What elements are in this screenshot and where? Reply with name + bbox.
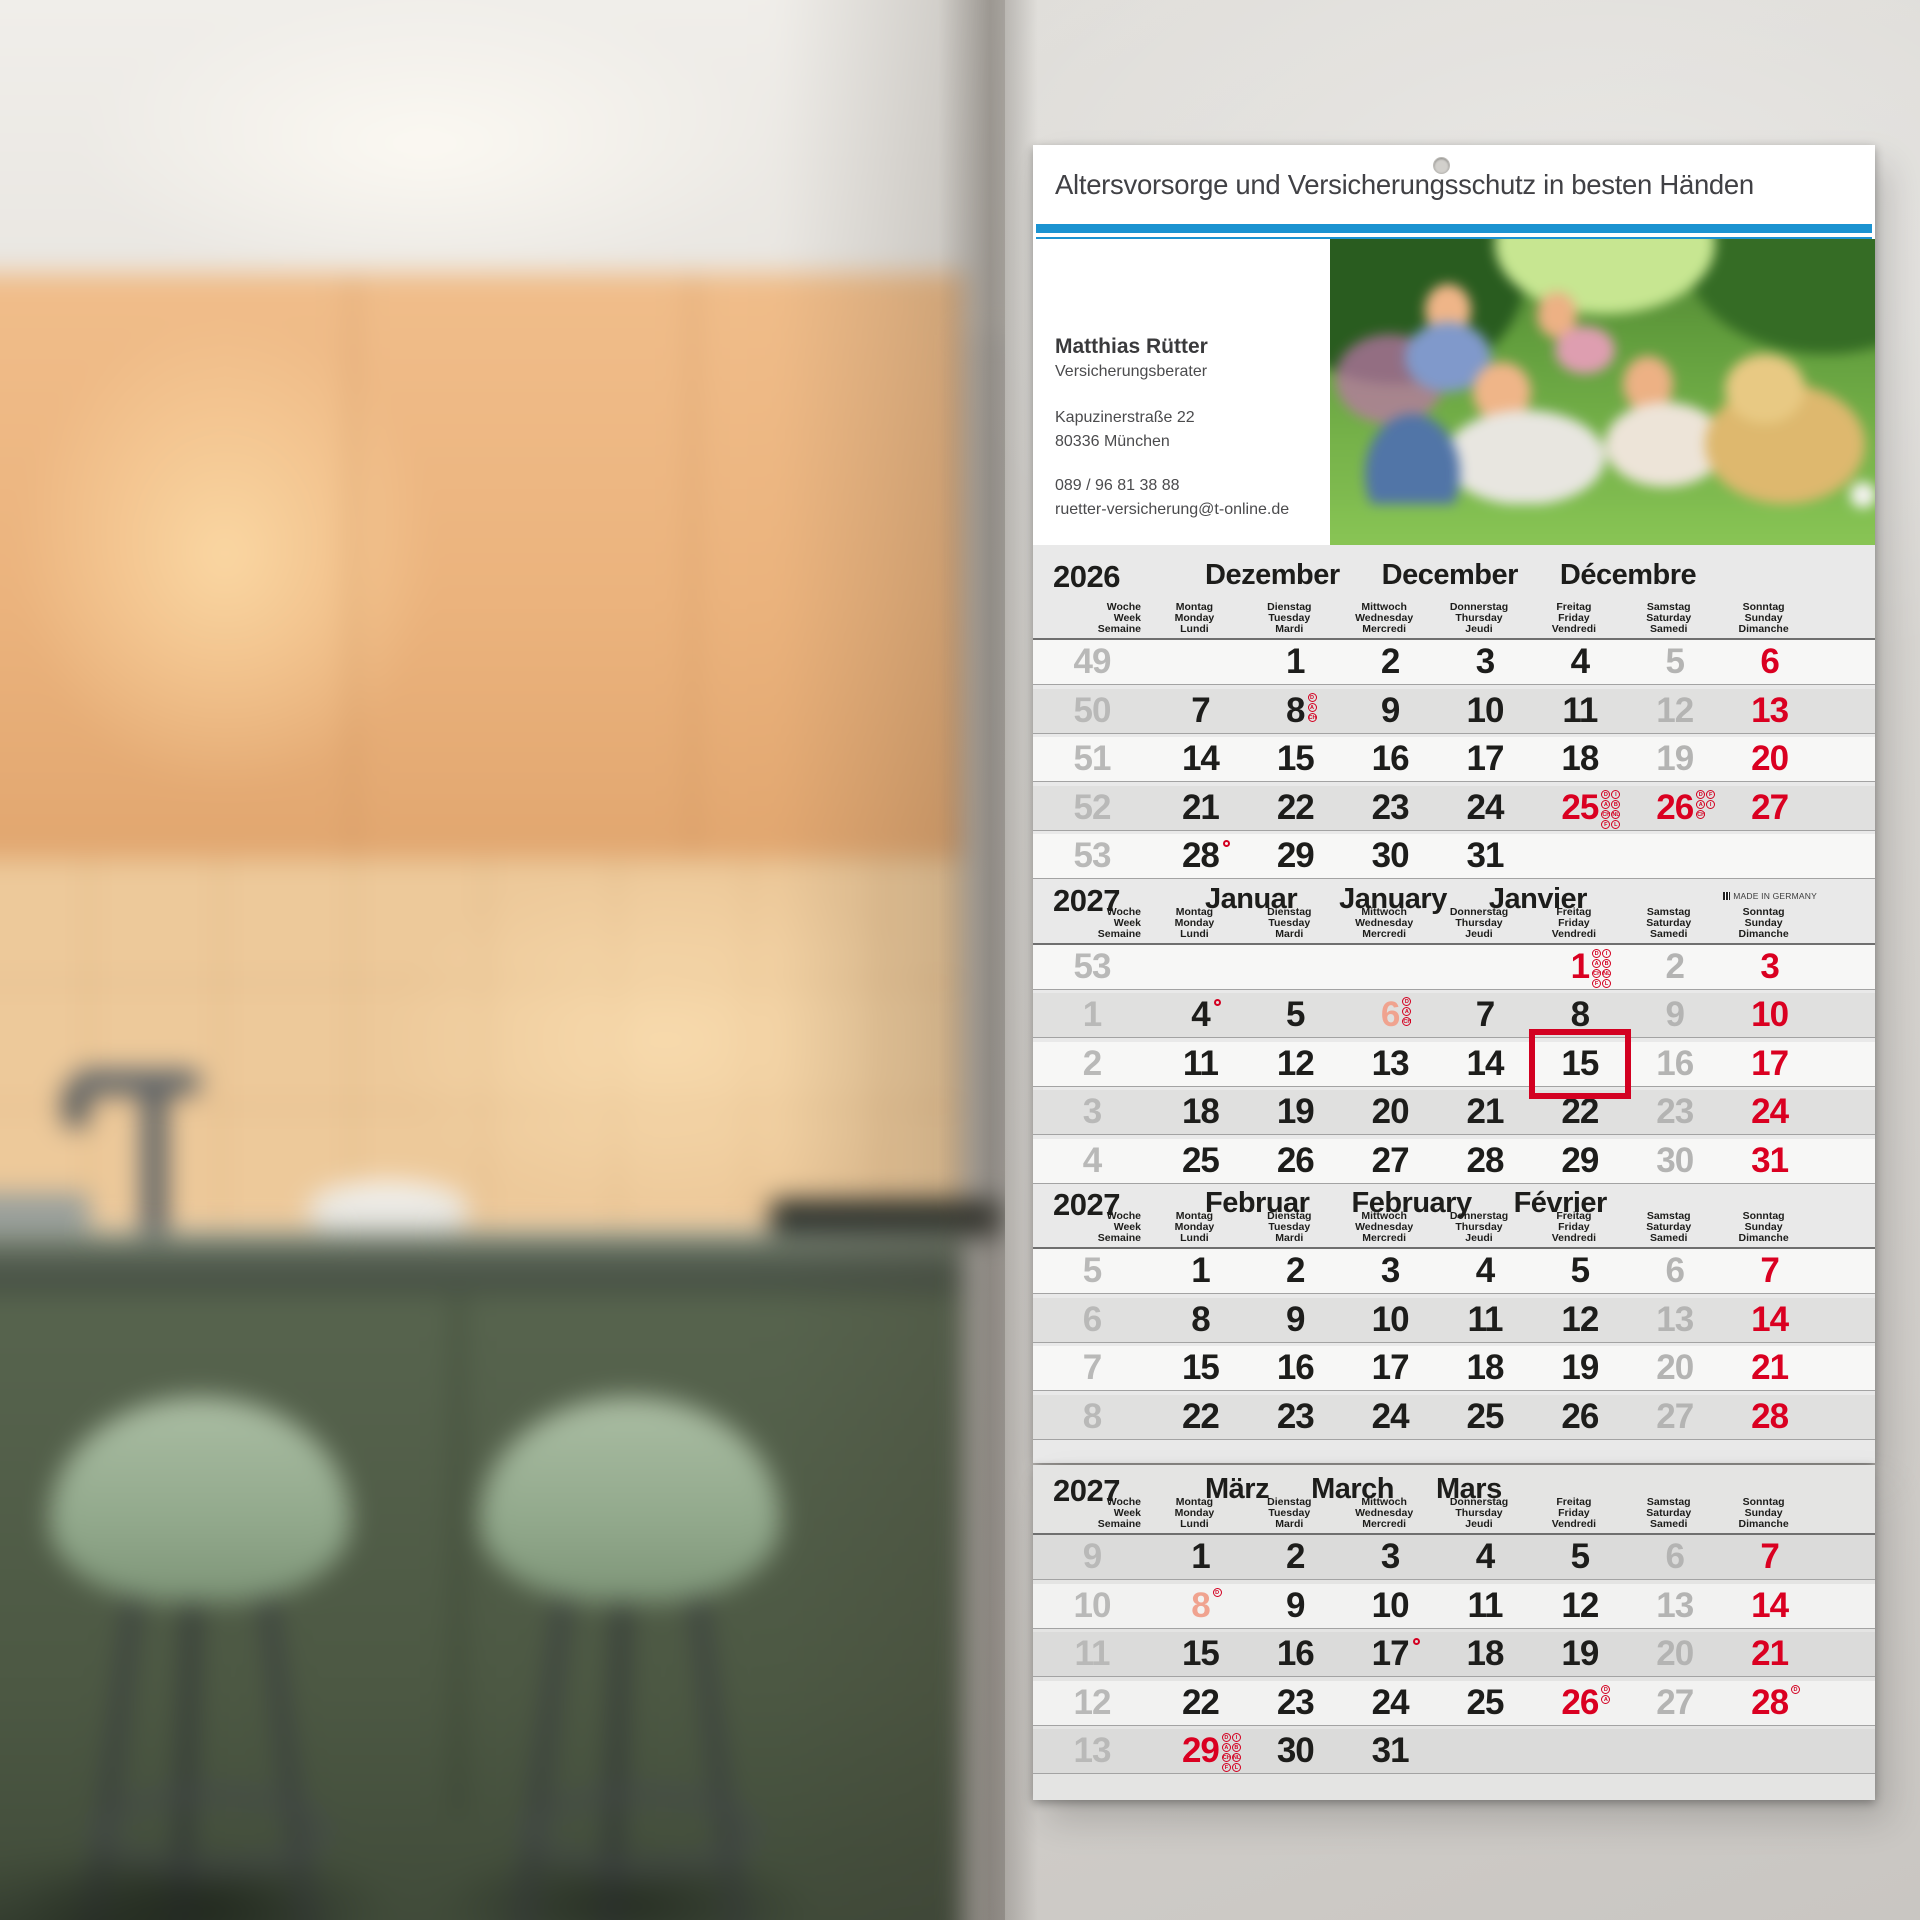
day-cell: 17	[1722, 1044, 1817, 1084]
day-cell: 4	[1153, 995, 1248, 1035]
moon-dot-marker	[1223, 840, 1230, 847]
day-number: 4	[1476, 1537, 1494, 1577]
day-number: 3	[1760, 947, 1778, 987]
day-number: 17	[1372, 1634, 1409, 1674]
day-number: 13	[1372, 1044, 1409, 1084]
day-number: 13	[1751, 691, 1788, 731]
day-number: 30	[1277, 1731, 1314, 1771]
month-block-januar: 2027JanuarJanuaryJanvierMADE IN GERMANYW…	[1033, 883, 1875, 1184]
day-number: 9	[1286, 1300, 1304, 1340]
holiday-marks: DACHFIBNLL	[1601, 790, 1620, 829]
week-row: 1115161718192021	[1033, 1632, 1875, 1677]
day-cell: 24	[1343, 1683, 1438, 1723]
day-number: 1DACHFIBNLL	[1571, 947, 1589, 987]
calendar-title: Altersvorsorge und Versicherungsschutz i…	[1033, 145, 1875, 224]
day-cell: 29	[1532, 1141, 1627, 1181]
day-name-header: SamstagSaturdaySamedi	[1627, 602, 1722, 635]
day-number: 31	[1467, 836, 1504, 876]
day-cell: 9	[1248, 1586, 1343, 1626]
day-name-header: DienstagTuesdayMardi	[1248, 907, 1343, 940]
day-number: 21	[1182, 788, 1219, 828]
day-cell: 31	[1438, 836, 1533, 876]
holiday-country-circle: A	[1592, 959, 1601, 968]
week-number: 5	[1043, 1251, 1153, 1291]
day-number: 16	[1277, 1348, 1314, 1388]
holiday-country-circle: I	[1611, 790, 1620, 799]
day-number: 30	[1656, 1141, 1693, 1181]
day-number: 25DACHFIBNLL	[1561, 788, 1598, 828]
day-cell: 5	[1248, 995, 1343, 1035]
holiday-country-circle: D	[1402, 997, 1411, 1006]
contact-block: Matthias Rütter Versicherungsberater Kap…	[1033, 239, 1330, 545]
day-number: 17	[1751, 1044, 1788, 1084]
week-row: 522122232425DACHFIBNLL26DACHFI27	[1033, 786, 1875, 831]
holiday-country-circle: A	[1601, 800, 1610, 809]
holiday-country-circle: I	[1602, 949, 1611, 958]
day-number: 22	[1182, 1397, 1219, 1437]
month-block-märz: 2027MärzMarchMarsWocheWeekSemaineMontagM…	[1033, 1473, 1875, 1774]
kitchen-cabinet-seam	[350, 275, 355, 855]
moon-dot-marker	[1413, 1638, 1420, 1645]
day-number: 8	[1191, 1300, 1209, 1340]
day-number: 11	[1183, 1044, 1218, 1084]
family-photo-blur	[1330, 239, 1875, 545]
week-column-header: WocheWeekSemaine	[1043, 907, 1153, 940]
bottom-sheet-margin	[1033, 1465, 1875, 1473]
day-number: 21	[1751, 1634, 1788, 1674]
day-cell: 18	[1438, 1634, 1533, 1674]
day-number: 6	[1760, 642, 1778, 682]
day-number: 15	[1277, 739, 1314, 779]
day-name-header: SamstagSaturdaySamedi	[1627, 1211, 1722, 1244]
day-number: 13	[1656, 1300, 1693, 1340]
week-row: 715161718192021	[1033, 1346, 1875, 1391]
holiday-country-circle: L	[1602, 979, 1611, 988]
day-name-header-row: WocheWeekSemaineMontagMondayLundiDiensta…	[1033, 1497, 1875, 1535]
contact-email: ruetter-versicherung@t-online.de	[1055, 498, 1330, 522]
day-cell: 18	[1532, 739, 1627, 779]
month-header: 2027MärzMarchMarsWocheWeekSemaineMontagM…	[1033, 1473, 1875, 1535]
week-column-header: WocheWeekSemaine	[1043, 1211, 1153, 1244]
day-cell: 31	[1343, 1731, 1438, 1771]
day-name-header: SonntagSundayDimanche	[1722, 1497, 1817, 1530]
day-cell: 3	[1438, 642, 1533, 682]
week-number: 3	[1043, 1092, 1153, 1132]
day-number: 23	[1277, 1397, 1314, 1437]
day-name-header: MittwochWednesdayMercredi	[1343, 1497, 1438, 1530]
day-number: 27	[1656, 1397, 1693, 1437]
day-name-header: MontagMondayLundi	[1153, 602, 1248, 635]
day-number: 8DACH	[1286, 691, 1304, 731]
day-name-header: MittwochWednesdayMercredi	[1343, 1211, 1438, 1244]
contact-address2: 80336 München	[1055, 430, 1330, 454]
day-number: 23	[1656, 1092, 1693, 1132]
holiday-country-circle: CH	[1601, 810, 1610, 819]
day-number: 7	[1760, 1537, 1778, 1577]
family-photo	[1330, 239, 1875, 545]
day-cell: 23	[1248, 1397, 1343, 1437]
day-cell: 7	[1722, 1251, 1817, 1291]
day-cell: 25DACHFIBNLL	[1532, 788, 1627, 828]
day-number: 12	[1561, 1586, 1598, 1626]
week-row: 425262728293031	[1033, 1139, 1875, 1184]
day-cell: 11	[1532, 691, 1627, 731]
day-name-header: DienstagTuesdayMardi	[1248, 1497, 1343, 1530]
day-cell: 17	[1343, 1634, 1438, 1674]
day-cell: 14	[1438, 1044, 1533, 1084]
day-number: 12	[1561, 1300, 1598, 1340]
day-cell: 27	[1627, 1683, 1722, 1723]
day-number: 12	[1277, 1044, 1314, 1084]
day-number: 2	[1665, 947, 1683, 987]
day-cell: 10	[1438, 691, 1533, 731]
week-row: 6891011121314	[1033, 1298, 1875, 1343]
week-column-header: WocheWeekSemaine	[1043, 602, 1153, 635]
day-cell: 5	[1532, 1251, 1627, 1291]
day-cell: 19	[1532, 1348, 1627, 1388]
day-number: 18	[1467, 1348, 1504, 1388]
day-cell: 28	[1438, 1141, 1533, 1181]
day-cell: 5	[1627, 642, 1722, 682]
month-block-dezember: 2026DezemberDecemberDécembreWocheWeekSem…	[1033, 545, 1875, 879]
day-cell: 1	[1153, 1537, 1248, 1577]
day-cell: 20	[1627, 1348, 1722, 1388]
wall-calendar: Altersvorsorge und Versicherungsschutz i…	[1033, 145, 1875, 1800]
day-cell: 13	[1627, 1300, 1722, 1340]
week-number: 2	[1043, 1044, 1153, 1084]
day-number: 28	[1182, 836, 1219, 876]
holiday-marks: DACHFIBNLL	[1222, 1733, 1241, 1772]
day-cell: 16	[1248, 1348, 1343, 1388]
day-cell: 27	[1722, 788, 1817, 828]
day-number: 12	[1656, 691, 1693, 731]
week-number: 10	[1043, 1586, 1153, 1626]
day-cell: 13	[1627, 1586, 1722, 1626]
day-cell: 21	[1153, 788, 1248, 828]
day-cell: 10	[1343, 1300, 1438, 1340]
day-cell: 2	[1343, 642, 1438, 682]
holiday-country-circle: NL	[1611, 810, 1620, 819]
made-in-germany-label: MADE IN GERMANY	[1723, 891, 1817, 901]
holiday-marks: DACH	[1402, 997, 1411, 1026]
day-cell: 25	[1153, 1141, 1248, 1181]
holiday-country-circle: CH	[1592, 969, 1601, 978]
holiday-marks: DA	[1601, 1685, 1610, 1704]
day-cell: 1DACHFIBNLL	[1532, 947, 1627, 987]
day-number: 24	[1751, 1092, 1788, 1132]
day-number: 7	[1476, 995, 1494, 1035]
day-number: 25	[1467, 1683, 1504, 1723]
day-number: 14	[1182, 739, 1219, 779]
hanger-hole	[1433, 157, 1450, 174]
day-cell: 23	[1343, 788, 1438, 828]
day-cell: 16	[1627, 1044, 1722, 1084]
white-bowl	[307, 1181, 469, 1237]
day-number: 29DACHFIBNLL	[1182, 1731, 1219, 1771]
day-name-header: FreitagFridayVendredi	[1532, 1211, 1627, 1244]
holiday-country-circle: D	[1213, 1588, 1222, 1597]
day-number: 2	[1286, 1537, 1304, 1577]
week-number: 11	[1043, 1634, 1153, 1674]
week-number: 49	[1043, 642, 1153, 682]
day-cell: 8	[1153, 1300, 1248, 1340]
day-cell: 9	[1343, 691, 1438, 731]
day-cell: 2	[1248, 1537, 1343, 1577]
day-cell: 22	[1153, 1683, 1248, 1723]
contact-role: Versicherungsberater	[1055, 360, 1330, 384]
day-number: 2	[1286, 1251, 1304, 1291]
day-cell: 28	[1153, 836, 1248, 876]
day-cell: 19	[1248, 1092, 1343, 1132]
day-cell: 2	[1627, 947, 1722, 987]
day-cell: 21	[1722, 1348, 1817, 1388]
day-number: 25	[1467, 1397, 1504, 1437]
holiday-marks: DACHFI	[1696, 790, 1715, 819]
day-cell: 1	[1248, 642, 1343, 682]
day-cell: 6DACH	[1343, 995, 1438, 1035]
day-cell: 25	[1438, 1397, 1533, 1437]
holiday-country-circle: F	[1601, 820, 1610, 829]
day-number: 14	[1751, 1300, 1788, 1340]
holiday-country-circle: B	[1232, 1743, 1241, 1752]
contact-address1: Kapuzinerstraße 22	[1055, 406, 1330, 430]
day-cell: 17	[1438, 739, 1533, 779]
day-name-header-row: WocheWeekSemaineMontagMondayLundiDiensta…	[1033, 907, 1875, 945]
day-number: 19	[1277, 1092, 1314, 1132]
kitchen-blur-layer	[0, 0, 1005, 1920]
imprint-band: Matthias Rütter Versicherungsberater Kap…	[1033, 239, 1875, 545]
holiday-marks: D	[1213, 1588, 1222, 1597]
holiday-country-circle: B	[1611, 800, 1620, 809]
calendar-bottom-sheet: 2027MärzMarchMarsWocheWeekSemaineMontagM…	[1033, 1465, 1875, 1800]
week-number: 13	[1043, 1731, 1153, 1771]
day-cell: 17	[1343, 1348, 1438, 1388]
day-number: 31	[1751, 1141, 1788, 1181]
day-number: 24	[1372, 1683, 1409, 1723]
day-cell: 12	[1248, 1044, 1343, 1084]
day-number: 26DA	[1561, 1683, 1598, 1723]
day-number: 29	[1561, 1141, 1598, 1181]
day-number: 5	[1665, 642, 1683, 682]
day-cell: 30	[1343, 836, 1438, 876]
kitchen-sink	[0, 1193, 90, 1237]
holiday-country-circle: CH	[1308, 713, 1317, 722]
day-name-header-row: WocheWeekSemaineMontagMondayLundiDiensta…	[1033, 1211, 1875, 1249]
holiday-country-circle: L	[1232, 1763, 1241, 1772]
day-name-header: FreitagFridayVendredi	[1532, 1497, 1627, 1530]
day-cell: 21	[1722, 1634, 1817, 1674]
day-name-header: MittwochWednesdayMercredi	[1343, 907, 1438, 940]
day-cell: 8D	[1153, 1586, 1248, 1626]
day-cell: 18	[1153, 1092, 1248, 1132]
day-number: 25	[1182, 1141, 1219, 1181]
day-cell: 10	[1722, 995, 1817, 1035]
week-number: 52	[1043, 788, 1153, 828]
contact-name: Matthias Rütter	[1055, 334, 1330, 360]
day-cell: 2	[1248, 1251, 1343, 1291]
month-header: 2027JanuarJanuaryJanvierMADE IN GERMANYW…	[1033, 883, 1875, 945]
day-number: 6	[1665, 1251, 1683, 1291]
holiday-country-circle: NL	[1602, 969, 1611, 978]
day-number: 6DACH	[1381, 995, 1399, 1035]
day-number: 11	[1468, 1586, 1503, 1626]
holiday-country-circle: D	[1592, 949, 1601, 958]
day-cell: 9	[1627, 995, 1722, 1035]
kitchen-wall-glow	[75, 0, 775, 295]
day-number: 9	[1286, 1586, 1304, 1626]
day-cell: 14	[1153, 739, 1248, 779]
day-cell: 13	[1343, 1044, 1438, 1084]
faucet-spout	[73, 1069, 201, 1095]
day-cell: 24	[1438, 788, 1533, 828]
current-day-slider	[1529, 1029, 1631, 1099]
day-number: 4	[1191, 995, 1209, 1035]
day-name-header: SamstagSaturdaySamedi	[1627, 907, 1722, 940]
month-names: DezemberDecemberDécembre	[1205, 559, 1696, 592]
made-in-germany-icon	[1723, 892, 1730, 900]
day-cell: 11	[1153, 1044, 1248, 1084]
week-number: 51	[1043, 739, 1153, 779]
day-name-header: DonnerstagThursdayJeudi	[1438, 1211, 1533, 1244]
week-row: 5328293031	[1033, 834, 1875, 879]
top-sheet-months: 2026DezemberDecemberDécembreWocheWeekSem…	[1033, 545, 1875, 1440]
day-cell: 24	[1343, 1397, 1438, 1437]
day-number: 9	[1665, 995, 1683, 1035]
holiday-country-circle: L	[1611, 820, 1620, 829]
day-number: 7	[1760, 1251, 1778, 1291]
day-cell: 23	[1248, 1683, 1343, 1723]
day-number: 26	[1277, 1141, 1314, 1181]
day-number: 3	[1381, 1251, 1399, 1291]
day-name-header: SamstagSaturdaySamedi	[1627, 1497, 1722, 1530]
day-cell: 11	[1438, 1586, 1533, 1626]
day-cell: 19	[1627, 739, 1722, 779]
day-number: 10	[1467, 691, 1504, 731]
day-number: 1	[1286, 642, 1304, 682]
week-row: 822232425262728	[1033, 1395, 1875, 1440]
day-number: 14	[1467, 1044, 1504, 1084]
holiday-country-circle: D	[1696, 790, 1705, 799]
week-row: 1329DACHFIBNLL3031	[1033, 1729, 1875, 1774]
holiday-country-circle: D	[1222, 1733, 1231, 1742]
holiday-country-circle: F	[1706, 790, 1715, 799]
day-number: 10	[1751, 995, 1788, 1035]
day-number: 26	[1561, 1397, 1598, 1437]
day-cell: 16	[1248, 1634, 1343, 1674]
week-column-header: WocheWeekSemaine	[1043, 1497, 1153, 1530]
day-cell: 15	[1153, 1348, 1248, 1388]
day-number: 3	[1381, 1537, 1399, 1577]
holiday-country-circle: CH	[1402, 1017, 1411, 1026]
day-number: 20	[1372, 1092, 1409, 1132]
day-number: 7	[1191, 691, 1209, 731]
day-number: 21	[1467, 1092, 1504, 1132]
week-row: 1456DACH78910	[1033, 993, 1875, 1038]
week-number: 7	[1043, 1348, 1153, 1388]
day-cell: 29DACHFIBNLL	[1153, 1731, 1248, 1771]
day-cell: 16	[1343, 739, 1438, 779]
month-block-februar: 2027FebruarFebruaryFévrierWocheWeekSemai…	[1033, 1187, 1875, 1440]
day-number: 1	[1191, 1251, 1209, 1291]
holiday-country-circle: NL	[1232, 1753, 1241, 1762]
day-number: 23	[1372, 788, 1409, 828]
day-cell: 25	[1438, 1683, 1533, 1723]
day-number: 11	[1562, 691, 1597, 731]
week-number: 53	[1043, 947, 1153, 987]
day-number: 27	[1751, 788, 1788, 828]
day-cell: 20	[1722, 739, 1817, 779]
day-cell: 12	[1532, 1300, 1627, 1340]
week-number: 53	[1043, 836, 1153, 876]
week-row: 5078DACH910111213	[1033, 689, 1875, 734]
day-number: 19	[1561, 1348, 1598, 1388]
day-cell: 27	[1343, 1141, 1438, 1181]
faucet-head	[63, 1085, 89, 1127]
day-cell: 18	[1438, 1348, 1533, 1388]
day-number: 6	[1665, 1537, 1683, 1577]
day-cell: 3	[1343, 1251, 1438, 1291]
contact-phone: 089 / 96 81 38 88	[1055, 474, 1330, 498]
day-number: 15	[1182, 1348, 1219, 1388]
day-name-header: SonntagSundayDimanche	[1722, 602, 1817, 635]
day-cell: 28D	[1722, 1683, 1817, 1723]
week-number: 9	[1043, 1537, 1153, 1577]
day-number: 19	[1561, 1634, 1598, 1674]
day-cell: 26DA	[1532, 1683, 1627, 1723]
month-header: 2027FebruarFebruaryFévrierWocheWeekSemai…	[1033, 1187, 1875, 1249]
week-number: 1	[1043, 995, 1153, 1035]
day-cell: 26	[1532, 1397, 1627, 1437]
day-name-header: MittwochWednesdayMercredi	[1343, 602, 1438, 635]
day-name-header: DonnerstagThursdayJeudi	[1438, 1497, 1533, 1530]
day-number: 5	[1286, 995, 1304, 1035]
day-number: 10	[1372, 1300, 1409, 1340]
day-cell: 7	[1153, 691, 1248, 731]
holiday-country-circle: I	[1232, 1733, 1241, 1742]
month-name: Dezember	[1205, 559, 1340, 592]
day-cell: 26DACHFI	[1627, 788, 1722, 828]
day-cell: 4	[1532, 642, 1627, 682]
day-number: 9	[1381, 691, 1399, 731]
day-number: 22	[1277, 788, 1314, 828]
day-cell: 27	[1627, 1397, 1722, 1437]
day-number: 27	[1656, 1683, 1693, 1723]
day-cell: 15	[1532, 1044, 1627, 1084]
week-number: 50	[1043, 691, 1153, 731]
holiday-country-circle: F	[1592, 979, 1601, 988]
day-cell: 6	[1627, 1251, 1722, 1291]
holiday-country-circle: D	[1308, 693, 1317, 702]
day-number: 4	[1571, 642, 1589, 682]
day-cell: 29	[1248, 836, 1343, 876]
faucet	[141, 1083, 167, 1235]
day-cell: 30	[1627, 1141, 1722, 1181]
week-row: 108D91011121314	[1033, 1584, 1875, 1629]
moon-dot-marker	[1214, 999, 1221, 1006]
day-name-header: FreitagFridayVendredi	[1532, 907, 1627, 940]
holiday-marks: DACHFIBNLL	[1592, 949, 1611, 988]
day-number: 29	[1277, 836, 1314, 876]
day-name-header: DienstagTuesdayMardi	[1248, 602, 1343, 635]
day-number: 24	[1372, 1397, 1409, 1437]
holiday-country-circle: CH	[1222, 1753, 1231, 1762]
day-number: 27	[1372, 1141, 1409, 1181]
day-number: 11	[1468, 1300, 1503, 1340]
day-cell: 7	[1722, 1537, 1817, 1577]
day-cell: 6	[1627, 1537, 1722, 1577]
calendar-header-area: Altersvorsorge und Versicherungsschutz i…	[1033, 145, 1875, 545]
calendar-top-sheet: Altersvorsorge und Versicherungsschutz i…	[1033, 145, 1875, 1463]
